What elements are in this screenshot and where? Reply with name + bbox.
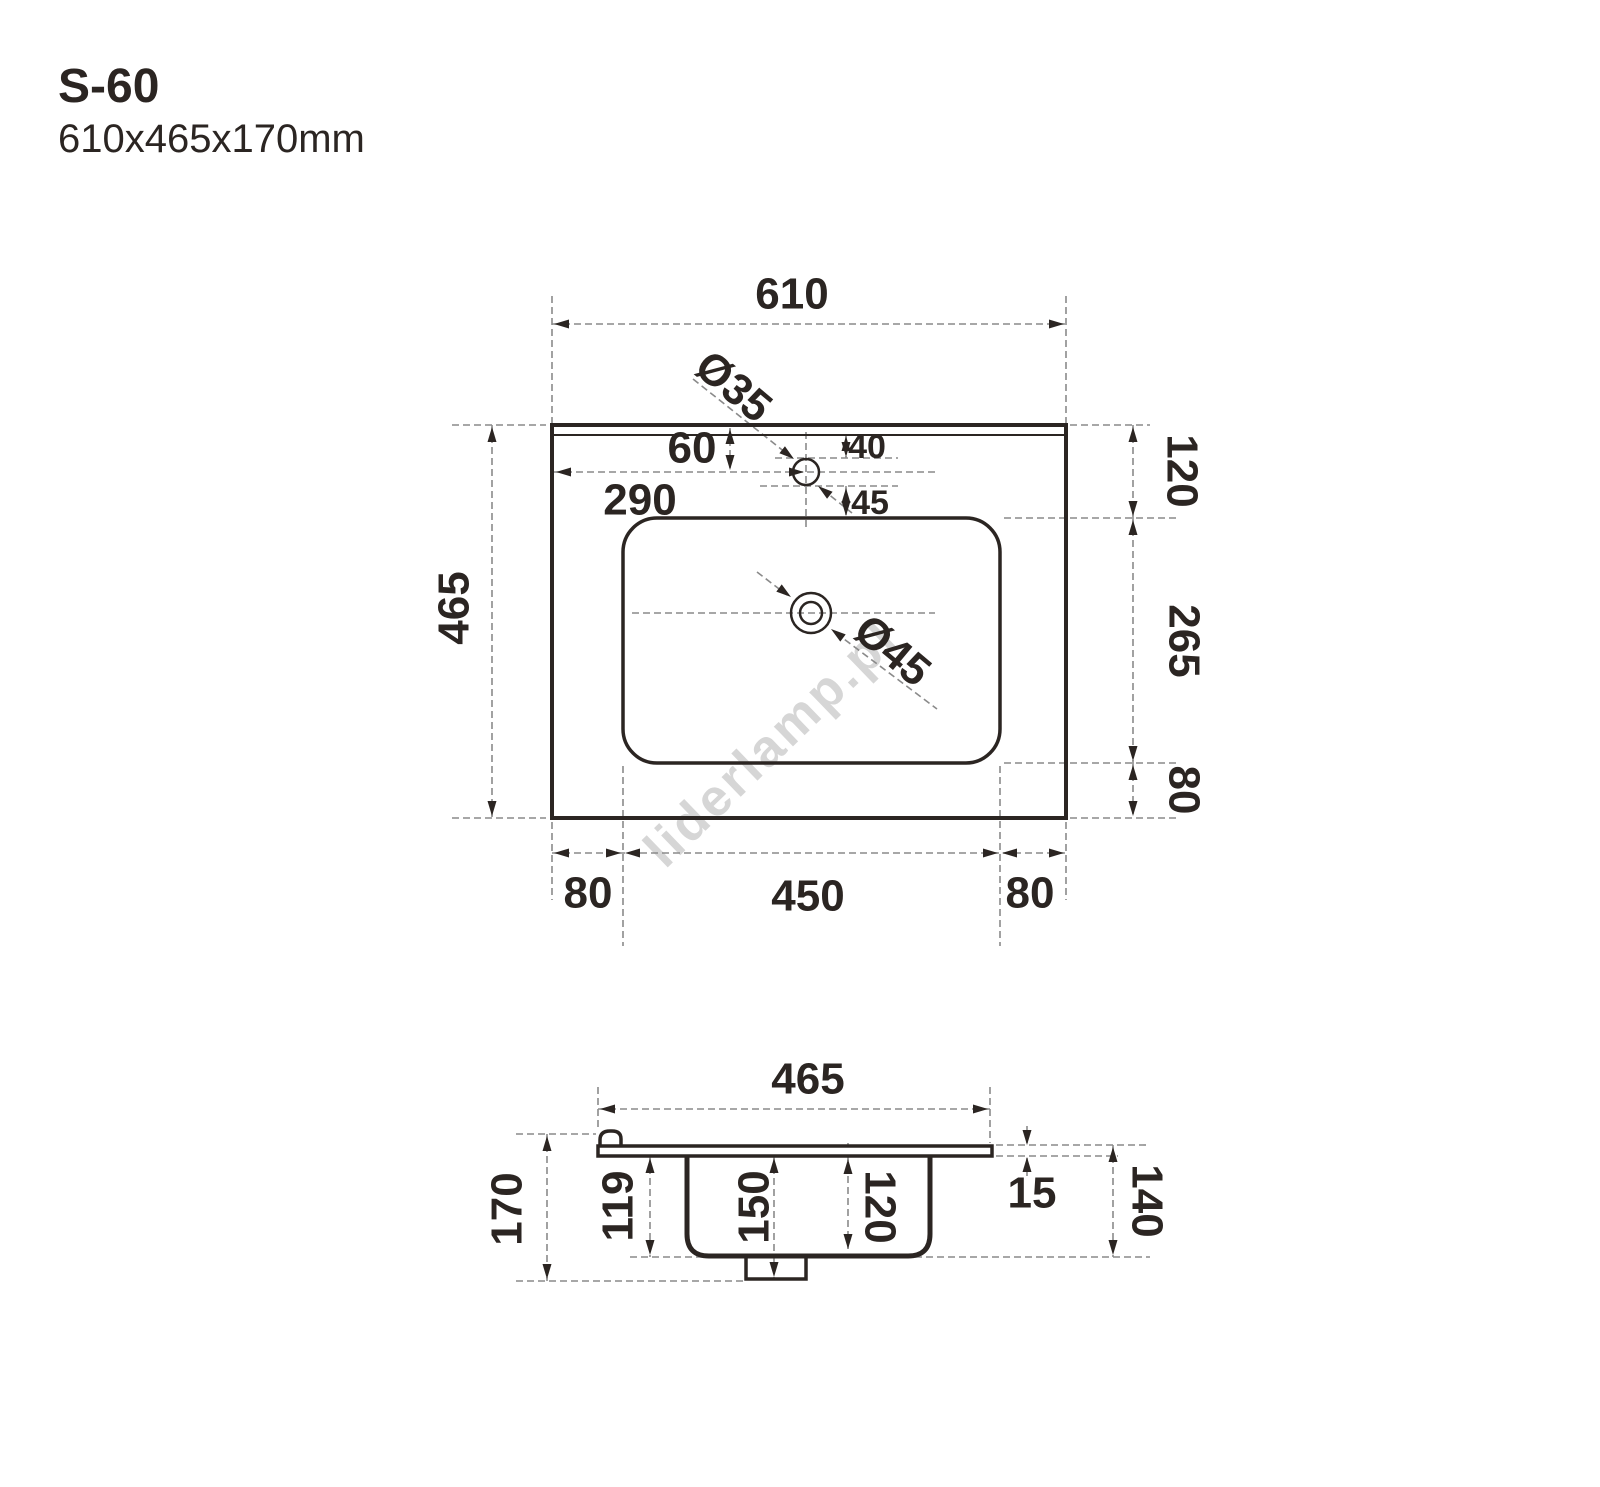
dim-drain-height: 150	[729, 1170, 778, 1243]
section-view: 465 170 119 150 120 15 140	[482, 1054, 1171, 1281]
dim-section-depth: 465	[771, 1054, 844, 1103]
dim-basin-depth: 265	[1160, 604, 1209, 677]
dim-faucet-to-basin: 45	[851, 484, 889, 522]
dim-rim-thickness: 15	[1008, 1168, 1057, 1217]
model-dimensions: 610x465x170mm	[58, 117, 365, 161]
model-title: S-60	[58, 60, 159, 113]
dim-overall-width: 610	[755, 269, 828, 318]
dim-basin-inner-depth: 120	[856, 1170, 905, 1243]
dim-basin-width: 450	[771, 871, 844, 920]
dim-margin-right: 80	[1006, 868, 1055, 917]
dim-basin-outer-depth: 119	[593, 1171, 642, 1242]
dim-total-height: 170	[482, 1172, 531, 1245]
dim-faucet-offset-left: 290	[603, 475, 676, 524]
countertop-slab	[598, 1146, 992, 1156]
top-view-extension-lines	[452, 296, 1180, 946]
dim-faucet-offset-top: 60	[668, 423, 717, 472]
dim-faucet-to-rim: 40	[848, 428, 886, 466]
dim-faucet-diameter: Ø35	[686, 341, 781, 432]
top-view-arrowheads	[488, 320, 1138, 858]
top-view: 610 465 60 290 40 45 Ø35 Ø45 120 265 80 …	[429, 269, 1208, 946]
dim-height-right: 140	[1123, 1164, 1172, 1237]
dim-margin-left: 80	[564, 868, 613, 917]
drawing-header: S-60 610x465x170mm	[58, 60, 365, 161]
dim-overall-depth: 465	[429, 571, 478, 644]
dim-basin-offset-top: 120	[1158, 434, 1207, 507]
dim-basin-offset-bottom: 80	[1160, 766, 1209, 815]
technical-drawing: S-60 610x465x170mm liderlamp.pl	[0, 0, 1600, 1482]
